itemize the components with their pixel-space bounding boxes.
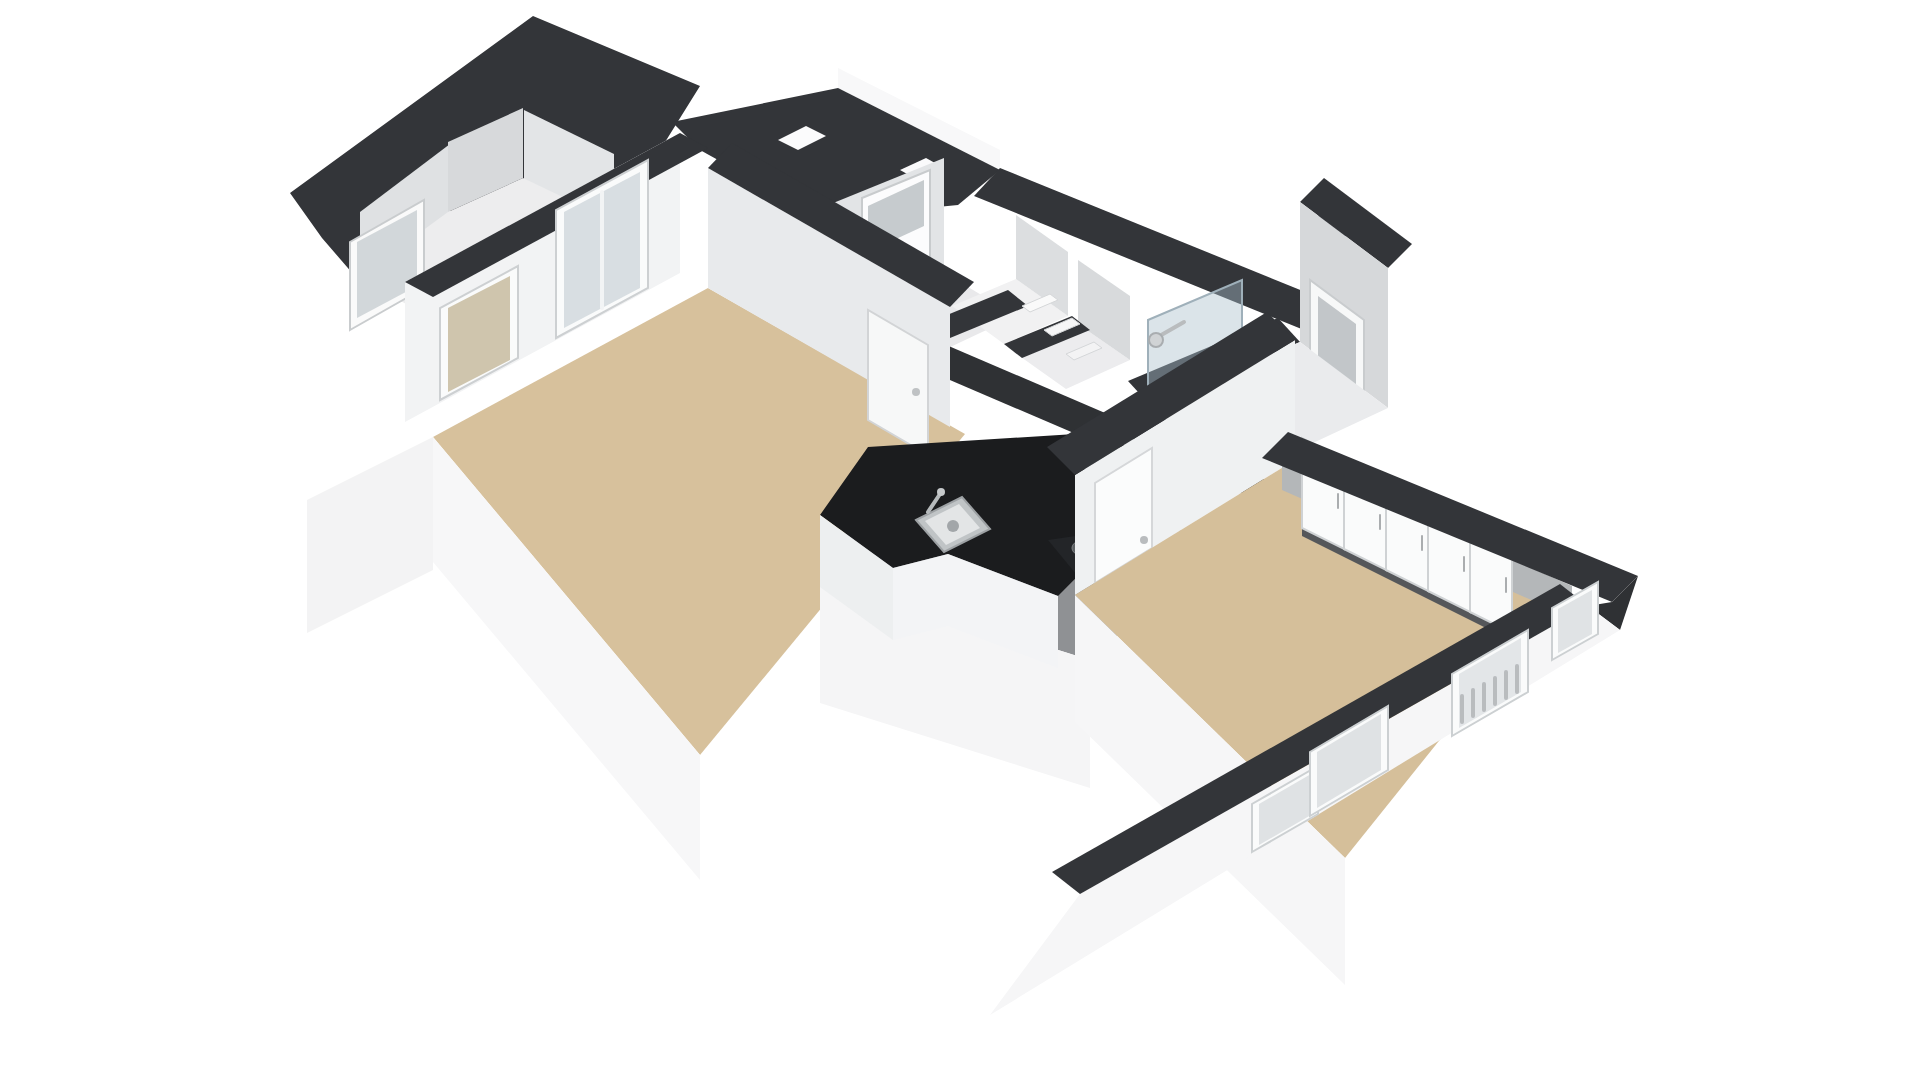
shower-head xyxy=(1149,333,1163,347)
west-end-slab-face xyxy=(307,437,433,633)
sink-drain xyxy=(947,520,959,532)
floorplan-3d-render xyxy=(0,0,1920,1080)
bedroom-door-handle xyxy=(1140,536,1148,544)
living-hall-door-handle xyxy=(912,388,920,396)
faucet-head xyxy=(937,488,945,496)
floorplan-page xyxy=(0,0,1920,1080)
